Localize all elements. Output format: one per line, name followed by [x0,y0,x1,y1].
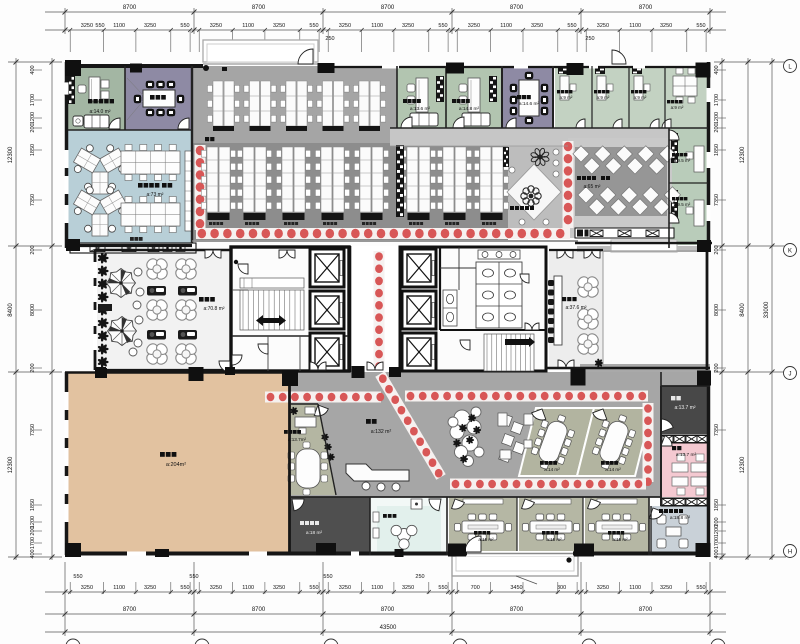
svg-text:a:15 m²: a:15 m² [478,537,494,542]
svg-text:3250: 3250 [81,23,93,29]
svg-text:8400: 8400 [8,303,14,317]
svg-text:a:14.6 m²: a:14.6 m² [519,101,540,107]
svg-text:700: 700 [471,585,480,591]
svg-text:a:9 m²: a:9 m² [671,105,684,110]
svg-text:400: 400 [714,65,720,74]
svg-text:a:14 m²: a:14 m² [605,467,621,472]
svg-text:1700: 1700 [30,537,36,549]
svg-text:a:15 m²: a:15 m² [546,537,562,542]
svg-text:200: 200 [30,123,36,132]
svg-text:K: K [788,248,792,254]
svg-text:a:9 m²: a:9 m² [597,95,610,100]
svg-text:3250: 3250 [660,23,672,29]
svg-text:1700: 1700 [714,537,720,549]
svg-text:3450: 3450 [510,585,522,591]
svg-text:8700: 8700 [252,5,266,11]
svg-text:1100: 1100 [500,23,512,29]
svg-text:3250: 3250 [144,585,156,591]
svg-text:a:65 m²: a:65 m² [584,184,601,190]
svg-text:250: 250 [325,36,334,42]
svg-text:550: 550 [696,585,705,591]
svg-text:200: 200 [30,363,36,372]
svg-text:a:132 m²: a:132 m² [371,429,392,435]
svg-text:1850: 1850 [714,499,720,511]
svg-text:400: 400 [30,549,36,558]
svg-text:a:9 m²: a:9 m² [560,95,573,100]
svg-text:a:14 m²: a:14 m² [544,467,560,472]
svg-text:H: H [788,549,792,555]
svg-text:550: 550 [696,23,705,29]
svg-text:8700: 8700 [252,607,266,613]
svg-text:a:9.5 m²: a:9.5 m² [674,202,691,207]
svg-text:1850: 1850 [714,144,720,156]
svg-text:8700: 8700 [381,5,395,11]
svg-text:a:73 m²: a:73 m² [147,192,164,198]
svg-text:200: 200 [714,123,720,132]
svg-text:550: 550 [438,23,447,29]
svg-text:3250: 3250 [339,585,351,591]
svg-text:200: 200 [714,245,720,254]
svg-text:12300: 12300 [740,146,746,163]
svg-text:1200: 1200 [30,516,36,528]
svg-text:8700: 8700 [639,5,653,11]
svg-text:1100: 1100 [113,585,125,591]
svg-text:1100: 1100 [629,585,641,591]
svg-text:43500: 43500 [380,625,397,631]
svg-text:3250: 3250 [597,23,609,29]
svg-text:8700: 8700 [123,5,137,11]
svg-text:7350: 7350 [30,194,36,206]
svg-text:400: 400 [714,549,720,558]
svg-text:3250: 3250 [144,23,156,29]
svg-text:1100: 1100 [371,23,383,29]
svg-text:8400: 8400 [740,303,746,317]
svg-text:300: 300 [557,585,566,591]
svg-text:a:13.7 m²: a:13.7 m² [674,405,695,411]
svg-text:a:15 m²: a:15 m² [612,537,628,542]
svg-text:3250: 3250 [339,23,351,29]
svg-text:33000: 33000 [764,301,770,318]
svg-text:1100: 1100 [242,23,254,29]
svg-text:1200: 1200 [30,112,36,124]
svg-text:1700: 1700 [714,94,720,106]
svg-text:3250: 3250 [402,585,414,591]
svg-text:1200: 1200 [714,112,720,124]
svg-text:3250: 3250 [468,23,480,29]
svg-text:3250: 3250 [597,585,609,591]
svg-text:250: 250 [415,574,424,580]
svg-text:8700: 8700 [123,607,137,613]
svg-text:a:70.8 m²: a:70.8 m² [203,306,224,312]
svg-text:250: 250 [585,36,594,42]
svg-text:1100: 1100 [113,23,125,29]
svg-text:3250: 3250 [81,585,93,591]
svg-text:a:14.0 m²: a:14.0 m² [89,109,110,115]
svg-text:3250: 3250 [210,585,222,591]
svg-text:7350: 7350 [30,424,36,436]
svg-text:550: 550 [73,574,82,580]
svg-text:7350: 7350 [714,424,720,436]
svg-text:3250: 3250 [210,23,222,29]
svg-text:12300: 12300 [8,146,14,163]
svg-text:a:9.5 m²: a:9.5 m² [674,158,691,163]
svg-text:550: 550 [95,23,104,29]
svg-text:550: 550 [323,574,332,580]
svg-text:8700: 8700 [639,607,653,613]
svg-text:a:9 m²: a:9 m² [634,95,647,100]
svg-text:200: 200 [30,245,36,254]
svg-text:J: J [789,371,792,377]
svg-text:550: 550 [438,585,447,591]
svg-text:a:13.7m²: a:13.7m² [288,437,307,442]
svg-text:1850: 1850 [30,144,36,156]
svg-text:a:18.8 m²: a:18.8 m² [670,515,691,521]
svg-text:8700: 8700 [510,607,524,613]
svg-text:400: 400 [30,65,36,74]
svg-text:550: 550 [180,23,189,29]
svg-text:200: 200 [30,526,36,535]
svg-text:a:14.8 m²: a:14.8 m² [459,106,480,112]
svg-text:8000: 8000 [30,304,36,316]
svg-text:550: 550 [309,23,318,29]
svg-text:a:13.7 m²: a:13.7 m² [676,452,697,458]
svg-text:550: 550 [180,585,189,591]
svg-text:a:37.6 m²: a:37.6 m² [565,305,586,311]
svg-text:1200: 1200 [714,525,720,537]
svg-text:1100: 1100 [371,585,383,591]
svg-text:a:13.6 m²: a:13.6 m² [410,106,431,112]
svg-text:a:204m²: a:204m² [166,462,186,468]
svg-text:3250: 3250 [402,23,414,29]
svg-text:12300: 12300 [740,456,746,473]
svg-text:3250: 3250 [273,585,285,591]
svg-text:7350: 7350 [714,194,720,206]
svg-text:550: 550 [309,585,318,591]
svg-text:3250: 3250 [660,585,672,591]
svg-text:3250: 3250 [531,23,543,29]
svg-text:550: 550 [567,23,576,29]
svg-text:200: 200 [714,363,720,372]
svg-text:12300: 12300 [8,456,14,473]
svg-text:550: 550 [189,574,198,580]
svg-text:8700: 8700 [381,607,395,613]
svg-text:3250: 3250 [273,23,285,29]
svg-text:a:18 m²: a:18 m² [306,530,323,536]
svg-text:1850: 1850 [30,499,36,511]
svg-text:8700: 8700 [510,5,524,11]
svg-text:1100: 1100 [629,23,641,29]
svg-text:1100: 1100 [242,585,254,591]
svg-text:8000: 8000 [714,304,720,316]
svg-text:1700: 1700 [30,94,36,106]
